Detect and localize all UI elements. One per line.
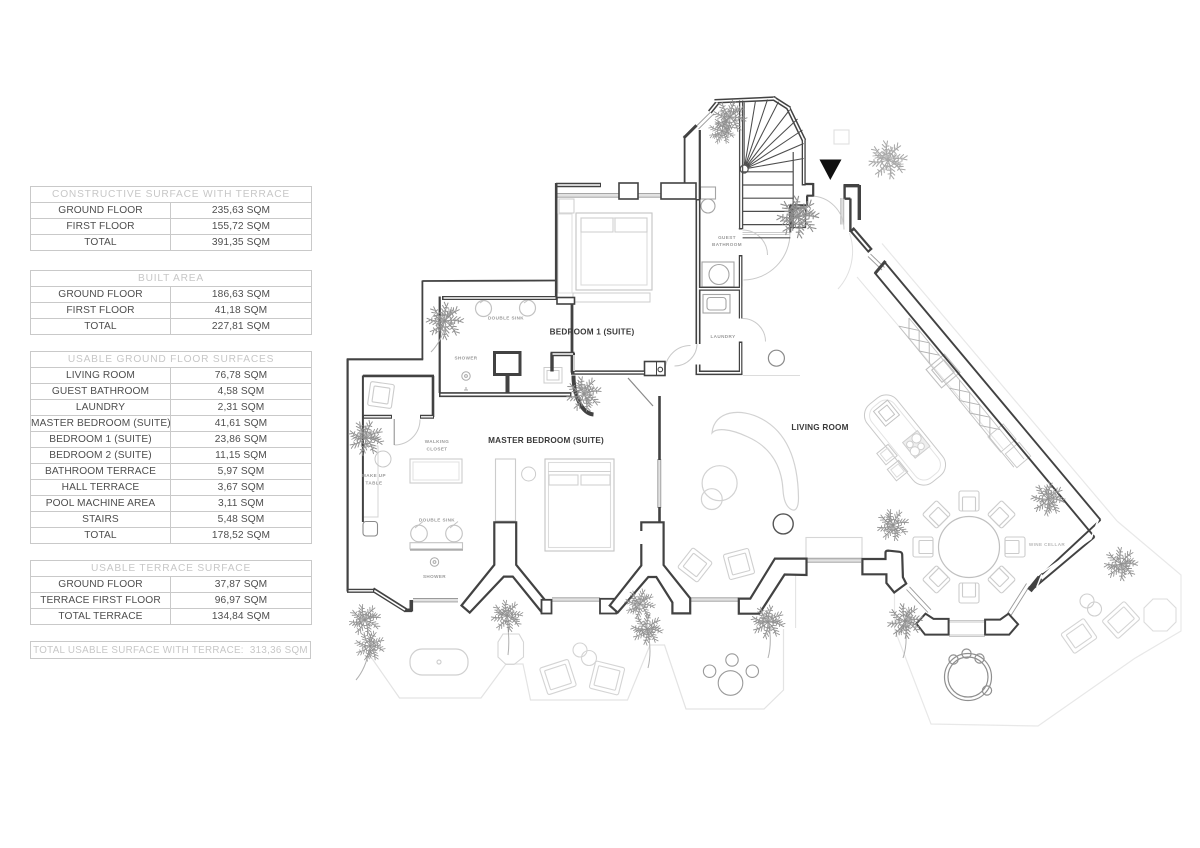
- svg-text:MAKE UP: MAKE UP: [362, 473, 386, 478]
- svg-text:MASTER BEDROOM (SUITE): MASTER BEDROOM (SUITE): [488, 436, 604, 445]
- svg-text:GUEST: GUEST: [718, 235, 736, 240]
- svg-text:TABLE: TABLE: [366, 481, 383, 486]
- svg-text:BEDROOM 1 (SUITE): BEDROOM 1 (SUITE): [550, 328, 635, 337]
- svg-text:DOUBLE SINK: DOUBLE SINK: [419, 518, 455, 523]
- svg-text:WALKING: WALKING: [425, 439, 450, 444]
- svg-text:BATHROOM: BATHROOM: [712, 242, 742, 247]
- svg-text:CLOSET: CLOSET: [426, 447, 447, 452]
- svg-text:SHOWER: SHOWER: [423, 574, 446, 579]
- svg-text:SHOWER: SHOWER: [454, 356, 477, 361]
- svg-text:LIVING ROOM: LIVING ROOM: [791, 423, 848, 432]
- svg-text:WINE CELLAR: WINE CELLAR: [1029, 542, 1066, 547]
- svg-text:LAUNDRY: LAUNDRY: [710, 334, 735, 339]
- svg-text:DOUBLE SINK: DOUBLE SINK: [488, 316, 524, 321]
